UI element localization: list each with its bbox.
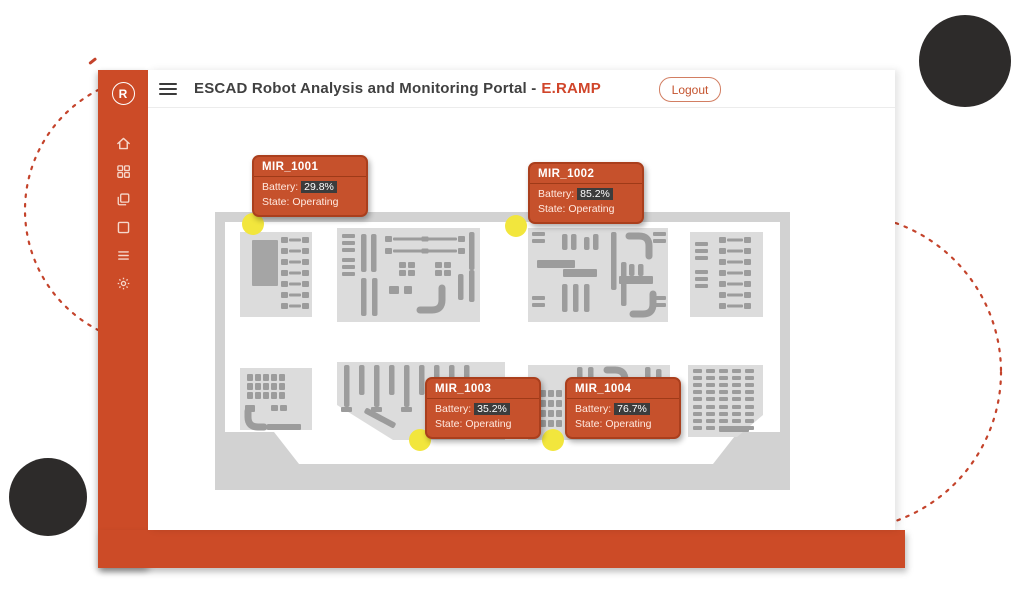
map-equipment bbox=[532, 232, 545, 236]
map-equipment bbox=[548, 410, 554, 417]
map-equipment bbox=[573, 284, 579, 312]
battery-value: 76.7% bbox=[614, 403, 650, 415]
map-equipment bbox=[744, 248, 751, 254]
robot-tooltip: MIR_1001 Battery: 29.8% State: Operating bbox=[252, 155, 368, 217]
map-equipment bbox=[719, 405, 728, 409]
map-equipment bbox=[281, 281, 288, 287]
map-equipment bbox=[706, 405, 715, 409]
map-equipment bbox=[719, 390, 728, 394]
window-icon bbox=[116, 220, 131, 235]
map-equipment bbox=[745, 390, 754, 394]
robot-tooltip: MIR_1004 Battery: 76.7% State: Operating bbox=[565, 377, 681, 439]
bottom-accent-bar bbox=[98, 530, 905, 568]
map-equipment bbox=[744, 281, 751, 287]
battery-value: 85.2% bbox=[577, 188, 613, 200]
map-equipment bbox=[695, 256, 708, 260]
map-equipment bbox=[401, 407, 412, 412]
map-equipment bbox=[719, 419, 728, 423]
map-equipment bbox=[593, 234, 599, 250]
map-equipment bbox=[693, 376, 702, 380]
map-equipment bbox=[374, 365, 380, 407]
map-equipment bbox=[727, 283, 743, 286]
map-equipment bbox=[745, 405, 754, 409]
map-equipment bbox=[719, 281, 726, 287]
map-equipment bbox=[556, 390, 562, 397]
map-equipment bbox=[745, 419, 754, 423]
map-equipment bbox=[744, 270, 751, 276]
map-equipment bbox=[706, 383, 715, 387]
map-equipment bbox=[408, 262, 415, 268]
map-equipment bbox=[695, 277, 708, 281]
map-equipment bbox=[653, 232, 666, 236]
map-equipment bbox=[719, 397, 728, 401]
state-label: State: bbox=[575, 418, 602, 430]
map-equipment bbox=[532, 303, 545, 307]
map-equipment bbox=[458, 274, 464, 300]
map-equipment bbox=[638, 264, 644, 276]
map-equipment bbox=[732, 412, 741, 416]
map-equipment bbox=[281, 237, 288, 243]
map-equipment bbox=[247, 392, 253, 399]
map-equipment bbox=[571, 234, 577, 250]
map-equipment bbox=[732, 419, 741, 423]
map-equipment bbox=[706, 397, 715, 401]
map-equipment bbox=[302, 292, 309, 298]
map-equipment bbox=[584, 284, 590, 312]
map-equipment bbox=[727, 305, 743, 308]
map-equipment bbox=[247, 374, 253, 381]
state-value: Operating bbox=[465, 418, 511, 430]
map-equipment bbox=[419, 365, 425, 395]
map-equipment bbox=[563, 269, 597, 277]
map-equipment bbox=[693, 390, 702, 394]
map-equipment bbox=[719, 237, 726, 243]
list-icon bbox=[116, 248, 131, 263]
app-sidebar: R bbox=[98, 70, 148, 568]
map-equipment bbox=[548, 420, 554, 427]
map-equipment bbox=[404, 365, 410, 407]
state-label: State: bbox=[262, 196, 289, 208]
map-equipment bbox=[289, 305, 301, 308]
map-equipment bbox=[744, 237, 751, 243]
map-equipment bbox=[727, 250, 743, 253]
map-equipment bbox=[719, 412, 728, 416]
robot-name: MIR_1004 bbox=[567, 379, 679, 399]
state-value: Operating bbox=[568, 203, 614, 215]
app-window: ESCAD Robot Analysis and Monitoring Port… bbox=[148, 70, 895, 530]
map-equipment bbox=[263, 383, 269, 390]
map-equipment bbox=[280, 405, 287, 411]
map-equipment bbox=[408, 270, 415, 276]
map-equipment bbox=[693, 419, 702, 423]
map-equipment bbox=[611, 232, 617, 290]
robot-tooltip: MIR_1002 Battery: 85.2% State: Operating bbox=[528, 162, 644, 224]
map-equipment bbox=[444, 270, 451, 276]
map-equipment bbox=[342, 272, 355, 276]
map-equipment bbox=[584, 237, 590, 250]
robot-position-dot[interactable] bbox=[542, 429, 564, 451]
decor-dash-mark bbox=[88, 57, 97, 65]
copy-pages-icon bbox=[116, 192, 131, 207]
map-equipment bbox=[732, 390, 741, 394]
map-equipment bbox=[727, 272, 743, 275]
map-equipment bbox=[344, 365, 350, 407]
map-equipment bbox=[706, 376, 715, 380]
map-equipment bbox=[653, 239, 666, 243]
map-equipment bbox=[695, 242, 708, 246]
map-equipment bbox=[469, 232, 475, 270]
map-equipment bbox=[255, 392, 261, 399]
map-equipment bbox=[263, 374, 269, 381]
map-equipment bbox=[693, 426, 702, 430]
app-header: ESCAD Robot Analysis and Monitoring Port… bbox=[148, 70, 895, 108]
map-equipment bbox=[693, 412, 702, 416]
logout-button[interactable]: Logout bbox=[659, 77, 721, 102]
map-equipment bbox=[732, 376, 741, 380]
robot-name: MIR_1001 bbox=[254, 157, 366, 177]
map-equipment bbox=[719, 248, 726, 254]
decor-dark-circle-bottom-left bbox=[9, 458, 87, 536]
map-equipment bbox=[255, 374, 261, 381]
map-equipment bbox=[389, 365, 395, 395]
map-equipment bbox=[458, 236, 465, 242]
map-equipment bbox=[548, 390, 554, 397]
map-equipment bbox=[267, 424, 301, 430]
map-equipment bbox=[706, 419, 715, 423]
battery-label: Battery: bbox=[435, 403, 471, 415]
sidebar-item-dashboard[interactable] bbox=[116, 164, 131, 179]
map-equipment bbox=[727, 294, 743, 297]
map-equipment bbox=[279, 392, 285, 399]
map-equipment bbox=[629, 264, 635, 276]
map-equipment bbox=[361, 234, 367, 272]
map-equipment bbox=[732, 369, 741, 373]
map-equipment bbox=[537, 260, 575, 268]
sidebar-item-pages[interactable] bbox=[116, 192, 131, 207]
state-label: State: bbox=[538, 203, 565, 215]
map-equipment bbox=[745, 397, 754, 401]
map-equipment bbox=[342, 265, 355, 269]
map-equipment bbox=[271, 405, 278, 411]
map-equipment bbox=[693, 383, 702, 387]
map-equipment bbox=[302, 270, 309, 276]
map-equipment bbox=[719, 426, 749, 432]
map-equipment bbox=[404, 286, 412, 294]
logo-letter: R bbox=[119, 87, 128, 101]
map-equipment bbox=[719, 369, 728, 373]
map-equipment bbox=[289, 283, 301, 286]
robot-tooltip: MIR_1003 Battery: 35.2% State: Operating bbox=[425, 377, 541, 439]
dashboard-grid-icon bbox=[116, 164, 131, 179]
factory-floor-svg bbox=[215, 212, 790, 490]
map-equipment bbox=[556, 420, 562, 427]
map-equipment bbox=[693, 405, 702, 409]
sidebar-nav bbox=[116, 136, 131, 291]
screenshot-root: R bbox=[0, 0, 1024, 594]
map-equipment bbox=[342, 241, 355, 245]
map-equipment bbox=[556, 400, 562, 407]
state-value: Operating bbox=[292, 196, 338, 208]
map-equipment bbox=[247, 383, 253, 390]
map-equipment bbox=[279, 374, 285, 381]
map-equipment bbox=[562, 234, 568, 250]
map-equipment bbox=[263, 392, 269, 399]
map-equipment bbox=[706, 426, 715, 430]
map-equipment bbox=[727, 261, 743, 264]
map-equipment bbox=[532, 239, 545, 243]
map-equipment bbox=[385, 236, 392, 242]
map-equipment bbox=[719, 383, 728, 387]
menu-hamburger-icon[interactable] bbox=[159, 83, 177, 95]
map-equipment bbox=[745, 369, 754, 373]
map-equipment bbox=[619, 276, 653, 284]
map-equipment bbox=[732, 397, 741, 401]
map-equipment bbox=[695, 249, 708, 253]
map-equipment bbox=[302, 281, 309, 287]
map-equipment bbox=[302, 237, 309, 243]
map-equipment bbox=[444, 262, 451, 268]
map-equipment bbox=[255, 383, 261, 390]
map-equipment bbox=[389, 286, 399, 294]
map-equipment bbox=[289, 272, 301, 275]
map-equipment bbox=[693, 397, 702, 401]
map-equipment bbox=[745, 376, 754, 380]
home-icon bbox=[116, 136, 131, 151]
map-equipment bbox=[372, 278, 378, 316]
map-equipment bbox=[732, 405, 741, 409]
map-equipment bbox=[556, 410, 562, 417]
battery-label: Battery: bbox=[262, 181, 298, 193]
map-equipment bbox=[302, 303, 309, 309]
map-equipment bbox=[435, 262, 442, 268]
page-title-main: ESCAD Robot Analysis and Monitoring Port… bbox=[194, 80, 536, 97]
map-equipment bbox=[469, 270, 475, 302]
map-equipment bbox=[727, 239, 743, 242]
settings-gear-icon bbox=[116, 276, 131, 291]
sidebar-item-window[interactable] bbox=[116, 220, 131, 235]
battery-label: Battery: bbox=[538, 188, 574, 200]
map-equipment bbox=[271, 392, 277, 399]
map-equipment bbox=[744, 303, 751, 309]
map-equipment bbox=[719, 376, 728, 380]
map-equipment bbox=[532, 296, 545, 300]
battery-value: 35.2% bbox=[474, 403, 510, 415]
map-equipment bbox=[706, 369, 715, 373]
map-equipment bbox=[271, 383, 277, 390]
map-equipment bbox=[719, 270, 726, 276]
map-equipment bbox=[361, 278, 367, 316]
page-title-accent: E.RAMP bbox=[541, 80, 601, 97]
battery-value: 29.8% bbox=[301, 181, 337, 193]
map-equipment bbox=[252, 240, 278, 286]
map-equipment bbox=[371, 234, 377, 272]
map-equipment bbox=[435, 270, 442, 276]
map-equipment bbox=[359, 365, 365, 395]
state-label: State: bbox=[435, 418, 462, 430]
map-equipment bbox=[693, 369, 702, 373]
map-equipment bbox=[732, 383, 741, 387]
robot-name: MIR_1002 bbox=[530, 164, 642, 184]
state-value: Operating bbox=[605, 418, 651, 430]
map-equipment bbox=[289, 294, 301, 297]
map-equipment bbox=[281, 259, 288, 265]
robot-name: MIR_1003 bbox=[427, 379, 539, 399]
map-equipment bbox=[458, 248, 465, 254]
map-equipment bbox=[342, 234, 355, 238]
page-title: ESCAD Robot Analysis and Monitoring Port… bbox=[194, 80, 601, 97]
map-equipment bbox=[745, 412, 754, 416]
sidebar-item-list[interactable] bbox=[116, 248, 131, 263]
map-equipment bbox=[341, 407, 352, 412]
map-equipment bbox=[289, 261, 301, 264]
app-logo: R bbox=[112, 82, 135, 105]
map-equipment bbox=[706, 412, 715, 416]
map-equipment bbox=[422, 237, 429, 242]
decor-dark-circle-top-right bbox=[919, 15, 1011, 107]
map-equipment bbox=[399, 270, 406, 276]
map-equipment bbox=[281, 248, 288, 254]
map-equipment bbox=[281, 303, 288, 309]
map-equipment bbox=[342, 248, 355, 252]
map-equipment bbox=[302, 259, 309, 265]
battery-label: Battery: bbox=[575, 403, 611, 415]
factory-map: MIR_1001 Battery: 29.8% State: Operating… bbox=[215, 212, 790, 490]
map-equipment bbox=[289, 250, 301, 253]
map-equipment bbox=[422, 249, 429, 254]
sidebar-item-home[interactable] bbox=[116, 136, 131, 151]
map-equipment bbox=[706, 390, 715, 394]
map-equipment bbox=[745, 383, 754, 387]
map-equipment bbox=[385, 248, 392, 254]
map-equipment bbox=[744, 292, 751, 298]
map-equipment bbox=[302, 248, 309, 254]
map-equipment bbox=[719, 292, 726, 298]
map-equipment bbox=[279, 383, 285, 390]
map-equipment bbox=[695, 270, 708, 274]
map-equipment bbox=[399, 262, 406, 268]
map-equipment bbox=[289, 239, 301, 242]
map-equipment bbox=[281, 270, 288, 276]
map-equipment bbox=[562, 284, 568, 312]
robot-position-dot[interactable] bbox=[505, 215, 527, 237]
map-equipment bbox=[719, 303, 726, 309]
map-equipment bbox=[281, 292, 288, 298]
map-equipment bbox=[342, 258, 355, 262]
map-equipment bbox=[695, 284, 708, 288]
map-equipment bbox=[719, 259, 726, 265]
map-equipment bbox=[744, 259, 751, 265]
map-equipment bbox=[548, 400, 554, 407]
map-equipment bbox=[271, 374, 277, 381]
sidebar-item-settings[interactable] bbox=[116, 276, 131, 291]
